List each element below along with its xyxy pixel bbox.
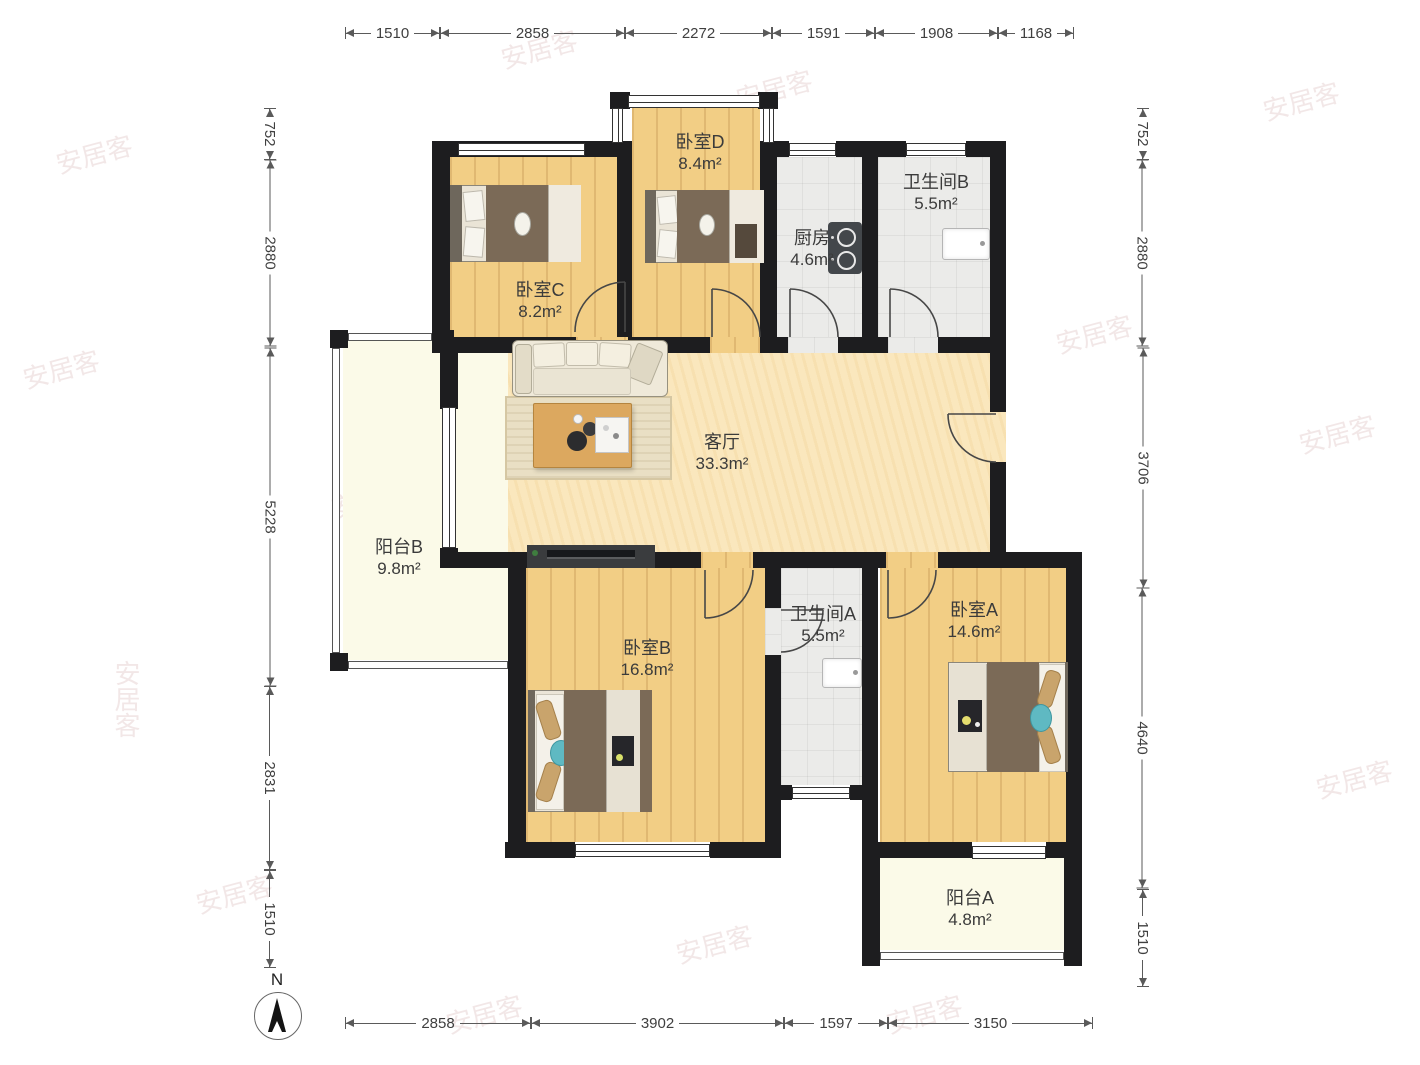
dim-left-3: 2831 [261, 686, 279, 870]
balcony-railing [332, 348, 340, 653]
room-label-living-room: 客厅33.3m² [696, 432, 749, 474]
watermark: 安居客 [52, 126, 137, 182]
wall-segment [862, 568, 878, 858]
wall-segment [938, 552, 1082, 568]
dim-bottom-3: 3150 [888, 1014, 1093, 1032]
door-opening [788, 337, 838, 353]
balcony-railing [880, 952, 1064, 960]
wall-segment [758, 92, 778, 109]
bed-icon-bedroom-d [645, 190, 763, 263]
wall-segment [765, 785, 792, 800]
wall-segment [508, 552, 526, 858]
room-label-bathroom-a: 卫生间A5.5m² [790, 604, 856, 646]
bed-icon-bedroom-b [528, 690, 652, 812]
door-opening [701, 552, 753, 568]
room-label-bathroom-b: 卫生间B5.5m² [903, 172, 969, 214]
balcony-railing [348, 333, 432, 341]
dim-top-1: 2858 [440, 24, 625, 42]
window [628, 95, 760, 108]
watermark: 安居客 [108, 660, 145, 738]
dim-top-0: 1510 [345, 24, 440, 42]
balcony-railing [348, 661, 508, 669]
dim-left-4: 1510 [261, 870, 279, 968]
wall-segment [330, 653, 348, 671]
tv-cabinet-icon [527, 545, 655, 568]
wall-segment [862, 842, 880, 966]
dim-right-4: 1510 [1134, 889, 1152, 987]
watermark: 安居客 [19, 341, 104, 397]
wall-segment [1066, 552, 1082, 858]
window [906, 143, 966, 156]
wall-segment [765, 655, 781, 858]
washbasin-icon-bathroom-b [942, 228, 990, 260]
wall-segment [753, 552, 886, 568]
wall-segment [862, 141, 878, 353]
washbasin-icon-bathroom-a [822, 658, 862, 688]
room-label-bedroom-c: 卧室C8.2m² [516, 280, 565, 322]
dim-top-4: 1908 [875, 24, 998, 42]
wall-segment [765, 568, 781, 608]
door-arc-entry [946, 412, 998, 464]
window [442, 407, 456, 548]
door-opening [888, 337, 938, 353]
door-opening [710, 337, 760, 353]
door-arc-kitchen [788, 287, 840, 339]
door-arc-bedroom-b [703, 568, 755, 620]
floor-plan: 安居客 安居客 安居客 安居客 安居客 安居客 安居客 安居客 安居客 安居客 … [0, 0, 1420, 1065]
wall-segment [432, 330, 454, 350]
dim-right-0: 752 [1134, 108, 1152, 160]
dim-left-1: 2880 [262, 160, 280, 347]
dim-bottom-1: 3902 [531, 1014, 784, 1032]
dim-left-2: 5228 [262, 348, 280, 687]
watermark: 安居客 [1259, 73, 1344, 129]
window [458, 143, 585, 156]
room-label-bedroom-a: 卧室A14.6m² [948, 600, 1001, 642]
watermark: 安居客 [1052, 306, 1137, 362]
window [972, 846, 1046, 859]
wall-segment [774, 141, 789, 157]
dim-right-1: 2880 [1134, 160, 1152, 347]
dim-top-2: 2272 [625, 24, 772, 42]
window [612, 108, 623, 143]
window [789, 143, 836, 156]
dim-top-5: 1168 [998, 24, 1074, 42]
door-arc-bathroom-b [888, 287, 940, 339]
watermark: 安居客 [1312, 751, 1397, 807]
wall-segment [505, 842, 575, 858]
wall-segment [330, 330, 348, 348]
wall-segment [836, 141, 906, 157]
sofa-icon [512, 340, 668, 397]
wall-segment [850, 785, 878, 800]
room-label-balcony-b: 阳台B9.8m² [375, 537, 423, 579]
dim-bottom-0: 2858 [345, 1014, 531, 1032]
room-label-kitchen: 厨房4.6m² [790, 228, 833, 270]
compass-north-label: N [271, 970, 283, 990]
room-label-bedroom-b: 卧室B16.8m² [621, 638, 674, 680]
window [792, 787, 850, 799]
wall-segment [432, 141, 450, 353]
wall-segment [610, 92, 630, 109]
dim-top-3: 1591 [772, 24, 875, 42]
watermark: 安居客 [1295, 406, 1380, 462]
room-label-bedroom-d: 卧室D8.4m² [676, 132, 725, 174]
dim-right-3: 4640 [1134, 588, 1152, 889]
wall-segment [990, 141, 1006, 353]
dim-left-0: 752 [261, 108, 279, 160]
bed-icon-bedroom-c [450, 185, 580, 262]
door-arc-bedroom-c [574, 281, 626, 333]
door-arc-bedroom-d [710, 287, 762, 339]
window [763, 108, 774, 143]
bed-icon-bedroom-a [948, 662, 1068, 772]
floor-balcony-b [343, 340, 508, 660]
room-label-balcony-a: 阳台A4.8m² [946, 888, 994, 930]
dim-right-2: 3706 [1135, 348, 1153, 589]
wall-segment [1064, 842, 1082, 966]
door-opening [886, 552, 938, 568]
window [575, 844, 710, 857]
north-arrow-notch [272, 1021, 282, 1032]
watermark: 安居客 [672, 916, 757, 972]
wall-segment [710, 842, 781, 858]
door-arc-bedroom-a [886, 568, 938, 620]
dim-bottom-2: 1597 [784, 1014, 888, 1032]
coffee-table-icon [533, 403, 632, 468]
